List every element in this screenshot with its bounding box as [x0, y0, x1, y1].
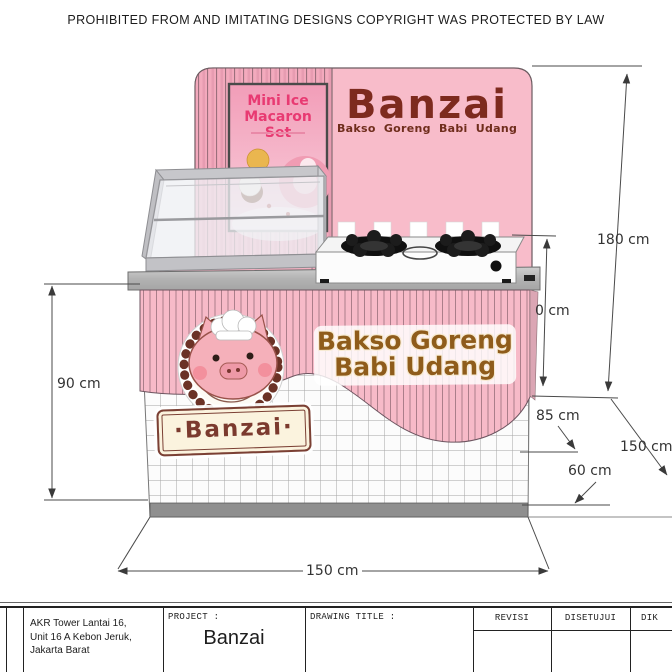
dim-height-counter: 85 cm [536, 408, 580, 424]
stove [316, 230, 535, 283]
dim-depth-top: 60 cm [568, 463, 612, 479]
counter-sign-line2: Babi Udang [314, 353, 516, 381]
counter-sign: Bakso Goreng Babi Udang [314, 324, 517, 386]
drawing-title-label: DRAWING TITLE : [310, 612, 396, 622]
pig-snout [220, 363, 247, 379]
company-address: AKR Tower Lantai 16, Unit 16 A Kebon Jer… [30, 617, 162, 658]
dim-height-left: 90 cm [57, 376, 101, 392]
badge-name-plaque: ·Banzai· [156, 404, 312, 456]
display-case [142, 166, 326, 283]
pig-eye-right [247, 353, 254, 360]
dim-depth-side: 150 cm [620, 439, 672, 455]
revisi-column-header: REVISI [473, 613, 551, 623]
kiosk-design-drawing: PROHIBITED FROM AND IMITATING DESIGNS CO… [0, 0, 672, 672]
disetujui-column-header: DISETUJUI [551, 613, 630, 623]
dim-height-partial: 0 cm [535, 303, 570, 319]
dim-height-total: 180 cm [597, 232, 650, 248]
pig-cheek-right [258, 363, 272, 377]
diketahui-column-header: DIK [641, 613, 658, 623]
counter-kickplate [150, 503, 528, 517]
poster-tagline-bar [251, 132, 305, 134]
pig-cheek-left [193, 366, 207, 380]
dim-width-front: 150 cm [303, 563, 362, 579]
stove-knob [491, 261, 502, 272]
project-name: Banzai [163, 627, 305, 650]
pig-eye-left [213, 355, 220, 362]
project-label: PROJECT : [168, 612, 219, 622]
headboard-subtitle: Bakso Goreng Babi Udang [337, 122, 473, 135]
